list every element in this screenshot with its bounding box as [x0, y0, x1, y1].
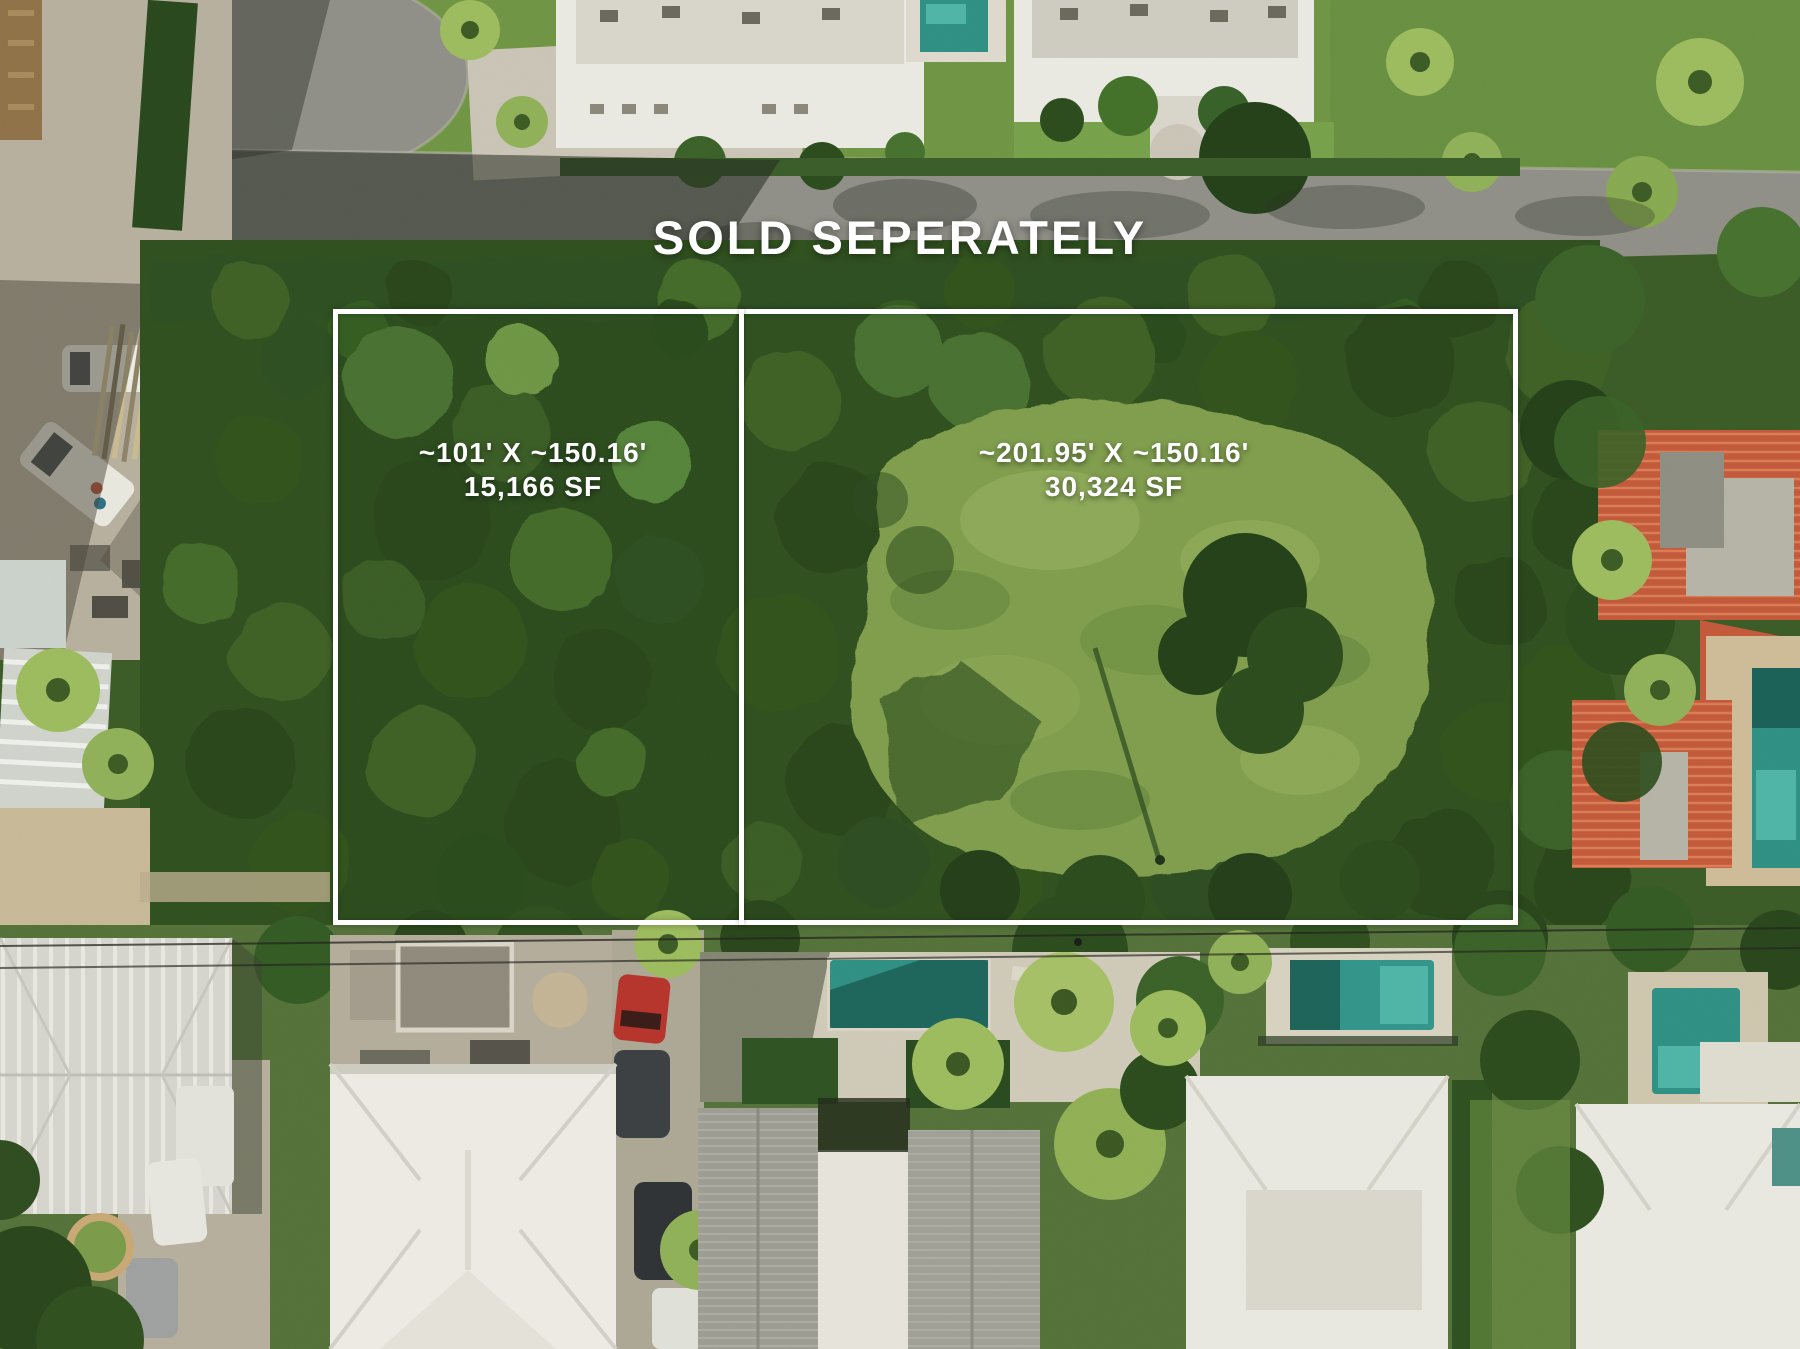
lot-east-area: 30,324 SF	[979, 470, 1250, 504]
lot-west-area: 15,166 SF	[419, 470, 648, 504]
lot-boundary-outline	[333, 309, 1518, 925]
aerial-listing-photo: SOLD SEPERATELY ~101' X ~150.16' 15,166 …	[0, 0, 1800, 1349]
lot-east-dimensions: ~201.95' X ~150.16'	[979, 436, 1250, 470]
sold-separately-headline: SOLD SEPERATELY	[653, 210, 1147, 265]
lot-label-east: ~201.95' X ~150.16' 30,324 SF	[979, 436, 1250, 504]
property-overlay: SOLD SEPERATELY ~101' X ~150.16' 15,166 …	[0, 0, 1800, 1349]
lot-divider-line	[739, 309, 744, 925]
lot-label-west: ~101' X ~150.16' 15,166 SF	[419, 436, 648, 504]
lot-west-dimensions: ~101' X ~150.16'	[419, 436, 648, 470]
